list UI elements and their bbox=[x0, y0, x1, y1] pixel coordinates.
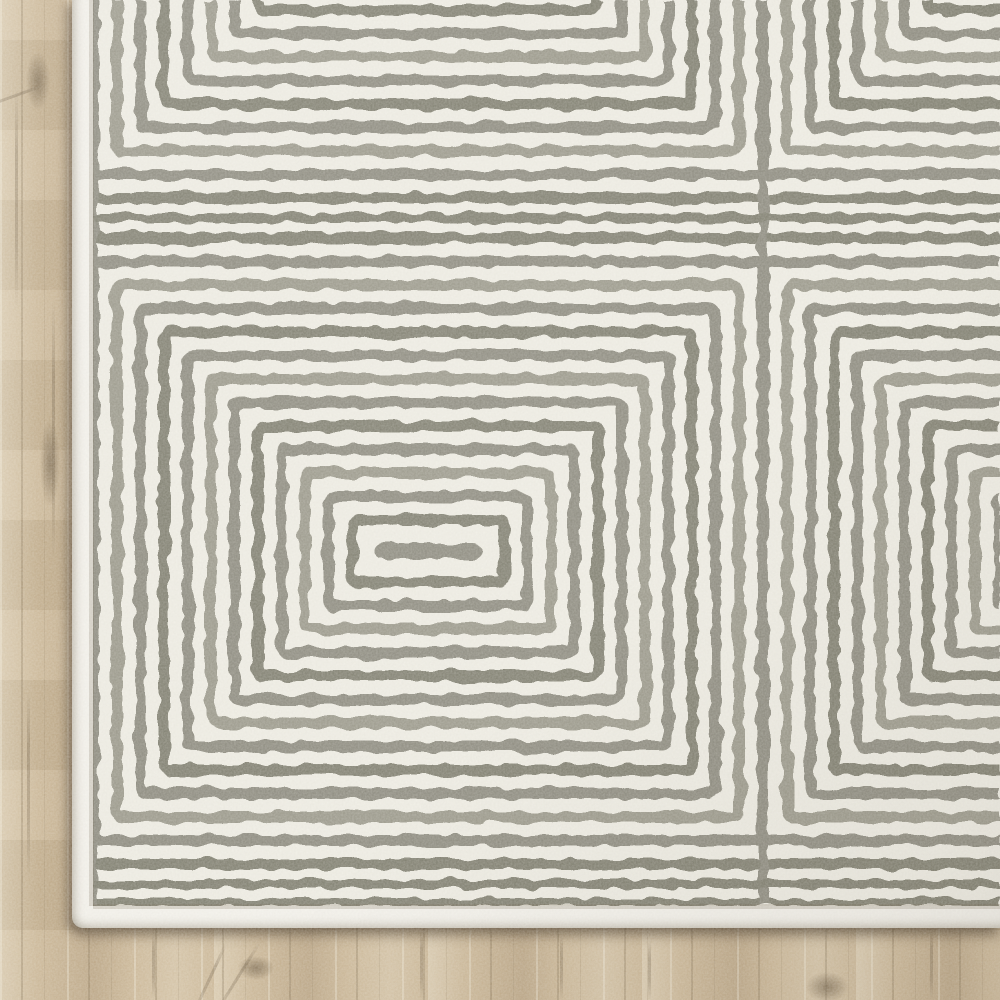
rug bbox=[72, 0, 1000, 928]
product-photo bbox=[0, 0, 1000, 1000]
wood-grain-streak bbox=[27, 690, 30, 880]
wood-knot bbox=[806, 972, 848, 1000]
wood-grain-streak bbox=[152, 932, 155, 998]
wood-grain-streak bbox=[930, 928, 933, 1000]
wood-grain-streak bbox=[420, 928, 423, 1000]
wood-knot bbox=[26, 52, 50, 110]
wood-grain-streak bbox=[15, 88, 18, 308]
wood-grain-streak bbox=[648, 940, 651, 1000]
wood-grain-streak bbox=[192, 943, 228, 1000]
wood-grain-streak bbox=[52, 300, 55, 560]
wood-knot bbox=[40, 420, 60, 506]
wood-grain-streak bbox=[560, 934, 563, 1000]
